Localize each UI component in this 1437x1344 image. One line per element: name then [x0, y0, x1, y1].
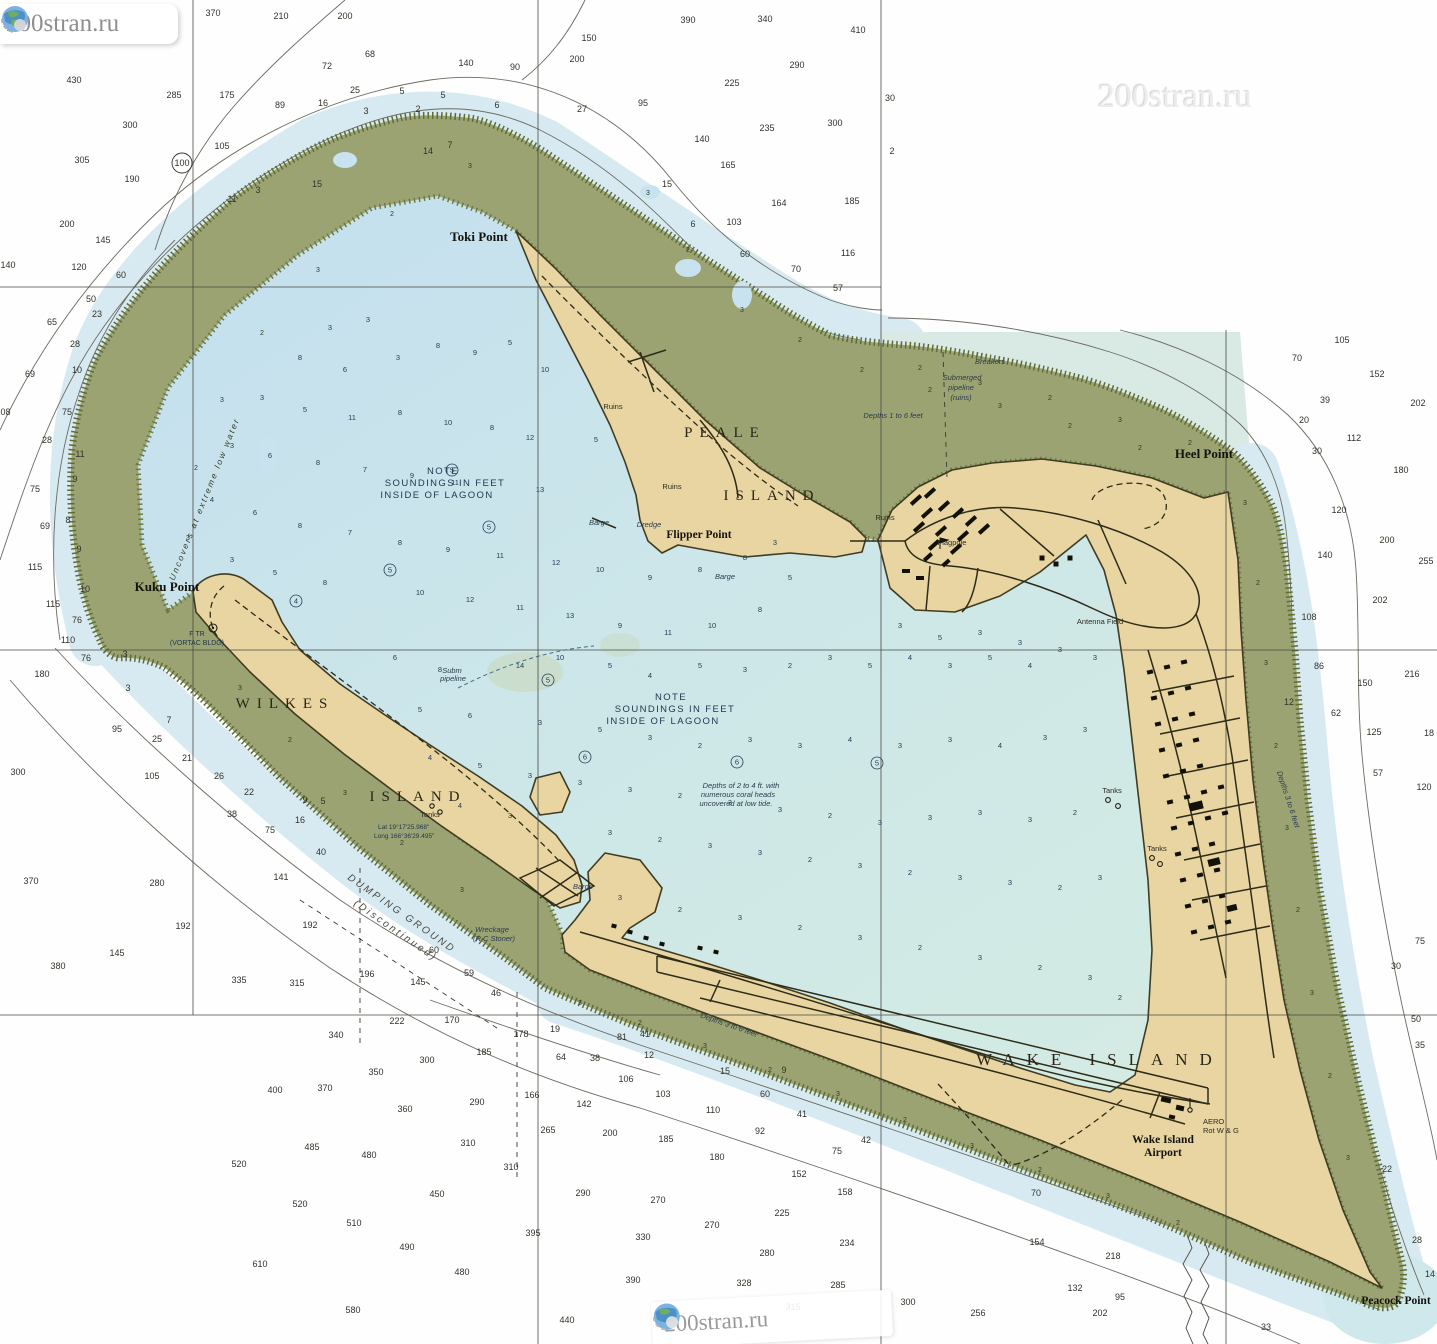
depth-sounding: 290: [469, 1097, 484, 1107]
lagoon-sounding: 3: [260, 393, 264, 402]
lagoon-sounding: 2: [1118, 993, 1122, 1002]
depth-sounding: 14: [1425, 1269, 1435, 1279]
building: [1068, 556, 1073, 561]
depth-sounding: 180: [34, 669, 49, 679]
lagoon-sounding: 9: [446, 545, 450, 554]
depth-sounding: 95: [1115, 1292, 1125, 1302]
depth-sounding: 3: [122, 649, 127, 659]
reef-sounding: 2: [638, 1020, 642, 1027]
depth-sounding: 200: [569, 54, 584, 64]
reef-sounding: 3: [343, 790, 347, 797]
reef-sounding: 3: [836, 1091, 840, 1098]
depth-sounding: 120: [1416, 782, 1431, 792]
depth-sounding: 22: [1382, 1164, 1392, 1174]
reef-sounding: 3: [1310, 990, 1314, 997]
circled-sounding: 100: [174, 158, 189, 168]
depth-sounding: 2: [889, 146, 894, 156]
depth-sounding: 18: [1424, 728, 1434, 738]
lagoon-sounding: 11: [496, 551, 504, 560]
reef-sounding: 2: [918, 365, 922, 372]
depth-sounding: 370: [317, 1083, 332, 1093]
wilkes-name: WILKES: [236, 696, 335, 712]
reef-sounding: 2: [798, 337, 802, 344]
lagoon-sounding: 3: [778, 805, 782, 814]
lagoon-sounding: 9: [648, 573, 652, 582]
reef-sounding: 2: [390, 211, 394, 218]
circled-sounding: 5: [388, 566, 392, 575]
lagoon-sounding: 7: [348, 528, 352, 537]
depth-sounding: 180: [709, 1152, 724, 1162]
depth-sounding: 75: [30, 484, 40, 494]
depth-sounding: 330: [635, 1232, 650, 1242]
ruins-3: Ruins: [662, 482, 681, 491]
depth-sounding: 95: [638, 98, 648, 108]
lagoon-sounding: 10: [416, 588, 424, 597]
reef-sounding: 2: [1296, 907, 1300, 914]
depths-1-6: Depths 1 to 6 feet: [863, 411, 923, 420]
lagoon-sounding: 5: [868, 661, 872, 670]
depth-sounding: 210: [273, 11, 288, 21]
site-logo-top-left[interactable]: 200stran.ru: [0, 4, 178, 44]
depth-sounding: 15: [662, 179, 672, 189]
depth-sounding: 110: [61, 635, 75, 645]
depth-sounding: 350: [368, 1067, 383, 1077]
depth-sounding: 178: [513, 1029, 528, 1039]
lagoon-sounding: 5: [608, 661, 612, 670]
building: [1040, 556, 1045, 561]
reef-sounding: 2: [686, 247, 690, 254]
lagoon-sounding: 4: [908, 653, 912, 662]
depth-sounding: 305: [74, 155, 89, 165]
depth-sounding: 280: [759, 1248, 774, 1258]
circled-sounding: 5: [487, 523, 491, 532]
depth-sounding: 112: [1347, 433, 1361, 443]
reef-sounding: 3: [220, 397, 224, 404]
lagoon-sounding: 5: [303, 405, 307, 414]
reef-sounding: 2: [1138, 445, 1142, 452]
lagoon-sounding: 3: [1088, 973, 1092, 982]
depth-sounding: 328: [736, 1278, 751, 1288]
depth-sounding: 69: [25, 369, 35, 379]
depth-sounding: 255: [1418, 556, 1433, 566]
depth-sounding: 41: [640, 1029, 650, 1039]
depth-sounding: 140: [0, 260, 15, 270]
depth-sounding: 390: [680, 15, 695, 25]
lagoon-sounding: 3: [858, 861, 862, 870]
depth-sounding: 580: [345, 1305, 360, 1315]
lagoon-sounding: 3: [366, 315, 370, 324]
building: [1054, 562, 1059, 567]
barge-2: Barge: [715, 572, 735, 581]
lagoon-sounding: 3: [738, 913, 742, 922]
depth-sounding: 280: [149, 878, 164, 888]
lagoon-sounding: 3: [858, 933, 862, 942]
depth-sounding: 21: [182, 753, 192, 763]
lagoon-sounding: 6: [253, 508, 257, 517]
depth-sounding: 69: [40, 521, 50, 531]
lagoon-sounding: 3: [578, 778, 582, 787]
lagoon-sounding: 3: [328, 323, 332, 332]
lagoon-sounding: 3: [958, 873, 962, 882]
depth-sounding: 125: [1366, 727, 1381, 737]
depth-sounding: 430: [66, 75, 81, 85]
depth-sounding: 75: [1415, 936, 1425, 946]
depth-sounding: 202: [1372, 595, 1387, 605]
depth-sounding: 70: [1292, 353, 1302, 363]
reef-sounding: 3: [460, 887, 464, 894]
flagpole: Flagpole: [938, 538, 967, 547]
peale-island-word: ISLAND: [724, 488, 821, 504]
lagoon-sounding: 3: [508, 811, 512, 820]
nautical-chart-wake-island: 3702102001503903404102002906872140902555…: [0, 0, 1437, 1344]
ruins-1: Ruins: [875, 513, 894, 522]
antenna-field: Antenna Field: [1077, 617, 1123, 626]
depth-sounding: 95: [112, 724, 122, 734]
depth-sounding: 76: [72, 615, 82, 625]
depth-sounding: 10: [80, 584, 90, 594]
note1-3: INSIDE OF LAGOON: [380, 490, 493, 501]
lagoon-sounding: 3: [743, 665, 747, 674]
lagoon-sounding: 3: [618, 893, 622, 902]
depth-sounding: 185: [476, 1047, 491, 1057]
depth-sounding: 20: [1299, 415, 1309, 425]
depth-sounding: 360: [397, 1104, 412, 1114]
depth-sounding: 140: [1317, 550, 1332, 560]
lagoon-sounding: 12: [552, 558, 560, 567]
lagoon-sounding: 5: [594, 435, 598, 444]
lagoon-sounding: 3: [230, 555, 234, 564]
depth-sounding: 70: [791, 264, 801, 274]
lagoon-sounding: 2: [678, 905, 682, 914]
reef-sounding: 3: [316, 267, 320, 274]
depth-sounding: 310: [503, 1162, 518, 1172]
depth-sounding: 166: [524, 1090, 539, 1100]
depth-sounding: 3: [363, 106, 368, 116]
lagoon-sounding: 4: [648, 671, 652, 680]
depth-sounding: 8: [65, 515, 70, 525]
chart-canvas: 3702102001503903404102002906872140902555…: [0, 0, 1437, 1344]
lagoon-sounding: 8: [436, 341, 440, 350]
depth-sounding: 196: [359, 969, 374, 979]
reef-sounding: 2: [768, 1067, 772, 1074]
circled-sounding: 6: [583, 753, 587, 762]
depth-sounding: 12: [644, 1050, 654, 1060]
depth-sounding: 142: [576, 1099, 591, 1109]
subm-pipeline-2: pipeline: [947, 383, 974, 392]
depth-sounding: 76: [81, 653, 91, 663]
lagoon-sounding: 8: [323, 578, 327, 587]
lagoon-sounding: 3: [538, 718, 542, 727]
lagoon-sounding: 5: [938, 633, 942, 642]
depth-sounding: 9: [72, 474, 77, 484]
depth-sounding: 300: [900, 1297, 915, 1307]
reef-sounding: 2: [860, 367, 864, 374]
depth-sounding: 190: [124, 174, 139, 184]
globe-icon: [0, 4, 30, 34]
depth-sounding: 72: [322, 61, 332, 71]
lagoon-sounding: 3: [1043, 733, 1047, 742]
lagoon-sounding: 3: [978, 628, 982, 637]
depth-sounding: 141: [273, 872, 288, 882]
depth-sounding: 25: [350, 85, 360, 95]
reef-sounding: 2: [1068, 423, 1072, 430]
lagoon-sounding: 3: [948, 735, 952, 744]
depth-sounding: 234: [839, 1238, 854, 1248]
depth-sounding: 390: [625, 1275, 640, 1285]
depth-sounding: 27: [577, 104, 587, 114]
lagoon-sounding: 7: [363, 465, 367, 474]
depth-sounding: 50: [1411, 1014, 1421, 1024]
depth-sounding: 200: [1379, 535, 1394, 545]
breakers: Breakers: [975, 357, 1005, 366]
depth-sounding: 300: [122, 120, 137, 130]
depth-sounding: 192: [175, 921, 190, 931]
note2-2: SOUNDINGS IN FEET: [615, 704, 735, 715]
toki-point: Toki Point: [450, 229, 508, 244]
lagoon-sounding: 2: [788, 661, 792, 670]
depth-sounding: 140: [458, 58, 473, 68]
depth-sounding: 5: [440, 90, 445, 100]
depth-sounding: 19: [550, 1024, 560, 1034]
reef-sounding: 2: [260, 330, 264, 337]
lagoon-sounding: 3: [878, 818, 882, 827]
reef-sounding: 2: [1176, 1220, 1180, 1227]
lagoon-sounding: 3: [528, 771, 532, 780]
depth-sounding: 480: [454, 1267, 469, 1277]
lagoon-sounding: 3: [948, 661, 952, 670]
depth-sounding: 395: [525, 1228, 540, 1238]
depth-sounding: 225: [774, 1208, 789, 1218]
ruins-2: Ruins: [603, 402, 622, 411]
lagoon-sounding: 13: [566, 611, 574, 620]
depth-sounding: 86: [1314, 661, 1324, 671]
depth-sounding: 216: [1404, 669, 1419, 679]
depth-sounding: 38: [590, 1053, 600, 1063]
reef-sounding: 3: [578, 1000, 582, 1007]
depth-sounding: 3: [255, 185, 260, 195]
depth-sounding: 103: [726, 217, 741, 227]
depth-sounding: 222: [389, 1016, 404, 1026]
depth-sounding: 57: [1373, 768, 1383, 778]
lagoon-sounding: 9: [473, 348, 477, 357]
reef-sounding: 2: [400, 840, 404, 847]
depth-sounding: 81: [617, 1032, 627, 1042]
lagoon-sounding: 8: [316, 458, 320, 467]
reef-sounding: 3: [1106, 1193, 1110, 1200]
lagoon-sounding: 5: [273, 568, 277, 577]
lagoon-sounding: 11: [664, 628, 672, 637]
depth-sounding: 520: [231, 1159, 246, 1169]
depth-sounding: 89: [275, 100, 285, 110]
dredge: Dredge: [637, 520, 662, 529]
depth-sounding: 165: [720, 160, 735, 170]
depth-sounding: 440: [559, 1315, 574, 1325]
lagoon-sounding: 2: [1073, 808, 1077, 817]
lagoon-sounding: 3: [898, 741, 902, 750]
depth-sounding: 285: [166, 90, 181, 100]
depth-sounding: 38: [227, 809, 237, 819]
depth-sounding: 14: [423, 146, 433, 156]
depth-sounding: 285: [830, 1280, 845, 1290]
lagoon-sounding: 3: [758, 848, 762, 857]
depth-sounding: 335: [231, 975, 246, 985]
depth-sounding: 65: [47, 317, 57, 327]
depth-sounding: 120: [1331, 505, 1346, 515]
tanks-3: Tanks: [420, 810, 440, 819]
depth-sounding: 152: [1369, 369, 1384, 379]
long-line: Long 166°36'29.495": [374, 832, 435, 840]
depth-sounding: 40: [316, 847, 326, 857]
depth-sounding: 10: [72, 365, 82, 375]
depth-sounding: 15: [312, 179, 322, 189]
depth-sounding: 92: [755, 1126, 765, 1136]
lagoon-sounding: 5: [598, 725, 602, 734]
note1-2: SOUNDINGS IN FEET: [385, 478, 505, 489]
reef-sounding: 2: [288, 737, 292, 744]
depth-sounding: 16: [318, 98, 328, 108]
lagoon-sounding: 3: [773, 538, 777, 547]
depth-sounding: 7: [447, 140, 452, 150]
depth-sounding: 28: [42, 435, 52, 445]
barge-3: Barge: [573, 882, 593, 891]
depth-sounding: 103: [655, 1089, 670, 1099]
subm-pipeline-3: (ruins): [950, 393, 972, 402]
wreckage-2: (R C Stoner): [473, 934, 516, 943]
depth-sounding: 265: [540, 1125, 555, 1135]
depth-sounding: 9: [76, 544, 81, 554]
wilkes-island-word: ISLAND: [370, 789, 467, 805]
depth-sounding: 120: [71, 262, 86, 272]
depth-sounding: 16: [295, 815, 305, 825]
depth-sounding: 200: [59, 219, 74, 229]
depth-sounding: 23: [92, 309, 102, 319]
depth-sounding: 9: [302, 795, 307, 805]
vortac-2: (VORTAC BLDG): [170, 640, 224, 647]
depth-sounding: 35: [1415, 1040, 1425, 1050]
lagoon-sounding: 2: [798, 923, 802, 932]
lagoon-sounding: 5: [988, 653, 992, 662]
depth-sounding: 75: [62, 407, 72, 417]
lagoon-sounding: 2: [1038, 963, 1042, 972]
reef-sounding: 3: [1243, 500, 1247, 507]
depth-sounding: 57: [833, 283, 843, 293]
lagoon-sounding: 11: [348, 413, 356, 422]
depth-sounding: 520: [292, 1199, 307, 1209]
depth-sounding: 152: [791, 1169, 806, 1179]
aero-1: AERO: [1203, 1117, 1224, 1126]
depth-sounding: 25: [152, 734, 162, 744]
lagoon-sounding: 12: [526, 433, 534, 442]
lagoon-sounding: 8: [398, 538, 402, 547]
lagoon-sounding: 3: [928, 813, 932, 822]
lagoon-sounding: 8: [298, 353, 302, 362]
depth-sounding: 28: [70, 339, 80, 349]
watermark-text: 200stran.ru: [1098, 78, 1252, 116]
depth-sounding: 225: [724, 78, 739, 88]
lagoon-sounding: 3: [648, 733, 652, 742]
reef-sounding: 2: [194, 465, 198, 472]
lagoon-sounding: 8: [758, 605, 762, 614]
depth-sounding: 26: [214, 771, 224, 781]
depth-sounding: 30: [1391, 961, 1401, 971]
depth-sounding: 46: [491, 988, 501, 998]
lagoon-sounding: 3: [1093, 653, 1097, 662]
depth-sounding: 270: [650, 1195, 665, 1205]
depth-sounding: 164: [771, 198, 786, 208]
depth-sounding: 115: [28, 562, 42, 572]
reef-sounding: 3: [1264, 660, 1268, 667]
note1-1: NOTE: [427, 466, 459, 477]
lagoon-sounding: 9: [618, 621, 622, 630]
depth-sounding: 70: [1031, 1188, 1041, 1198]
lagoon-sounding: 4: [428, 753, 432, 762]
building: [902, 569, 910, 573]
lagoon-sounding: 2: [698, 741, 702, 750]
lagoon-sounding: 3: [978, 808, 982, 817]
lagoon-sounding: 6: [343, 365, 347, 374]
depth-sounding: 105: [144, 771, 159, 781]
depth-sounding: 62: [1331, 708, 1341, 718]
reef-sounding: 3: [703, 1043, 707, 1050]
depth-sounding: 11: [227, 194, 236, 204]
heel-point: Heel Point: [1175, 446, 1234, 461]
lagoon-sounding: 5: [418, 705, 422, 714]
depth-sounding: 50: [86, 294, 96, 304]
depth-sounding: 60: [116, 270, 126, 280]
reef-sounding: 3: [970, 1143, 974, 1150]
depth-sounding: 5: [320, 796, 325, 806]
lagoon-sounding: 10: [444, 418, 452, 427]
depth-sounding: 106: [618, 1074, 633, 1084]
depth-sounding: 300: [419, 1055, 434, 1065]
depth-sounding: 256: [970, 1308, 985, 1318]
lagoon-sounding: 2: [908, 868, 912, 877]
reef-sounding: 3: [468, 163, 472, 170]
reef-sounding: 2: [928, 387, 932, 394]
depth-sounding: 315: [289, 978, 304, 988]
lagoon-sounding: 4: [1028, 661, 1032, 670]
lagoon-sounding: 8: [398, 408, 402, 417]
depth-sounding: 116: [841, 248, 855, 258]
depth-sounding: 110: [706, 1105, 720, 1115]
coral-note-3: uncovered at low tide.: [700, 799, 773, 808]
lagoon-sounding: 12: [466, 595, 474, 604]
globe-icon-bottom: [651, 1301, 683, 1333]
depth-sounding: 115: [46, 599, 60, 609]
subm-lagoon-2: pipeline: [439, 674, 466, 683]
lagoon-sounding: 10: [708, 621, 716, 630]
reef-sounding: 2: [1274, 743, 1278, 750]
depth-sounding: 22: [244, 787, 254, 797]
lagoon-sounding: 2: [918, 943, 922, 952]
lagoon-sounding: 2: [808, 855, 812, 864]
reef-sounding: 2: [1256, 580, 1260, 587]
lagoon-sounding: 3: [898, 621, 902, 630]
note2-1: NOTE: [655, 692, 687, 703]
lagoon-sounding: 5: [698, 661, 702, 670]
reef-sounding: 3: [1346, 1155, 1350, 1162]
depth-sounding: 9: [781, 1065, 786, 1075]
circled-sounding: 5: [875, 759, 879, 768]
lagoon-sounding: 10: [596, 565, 604, 574]
reef-sounding: 3: [740, 307, 744, 314]
depth-sounding: 5: [399, 86, 404, 96]
lagoon-sounding: 5: [788, 573, 792, 582]
depth-sounding: 400: [267, 1085, 282, 1095]
depth-sounding: 75: [265, 825, 275, 835]
depth-sounding: 170: [444, 1015, 459, 1025]
lagoon-sounding: 3: [1028, 815, 1032, 824]
